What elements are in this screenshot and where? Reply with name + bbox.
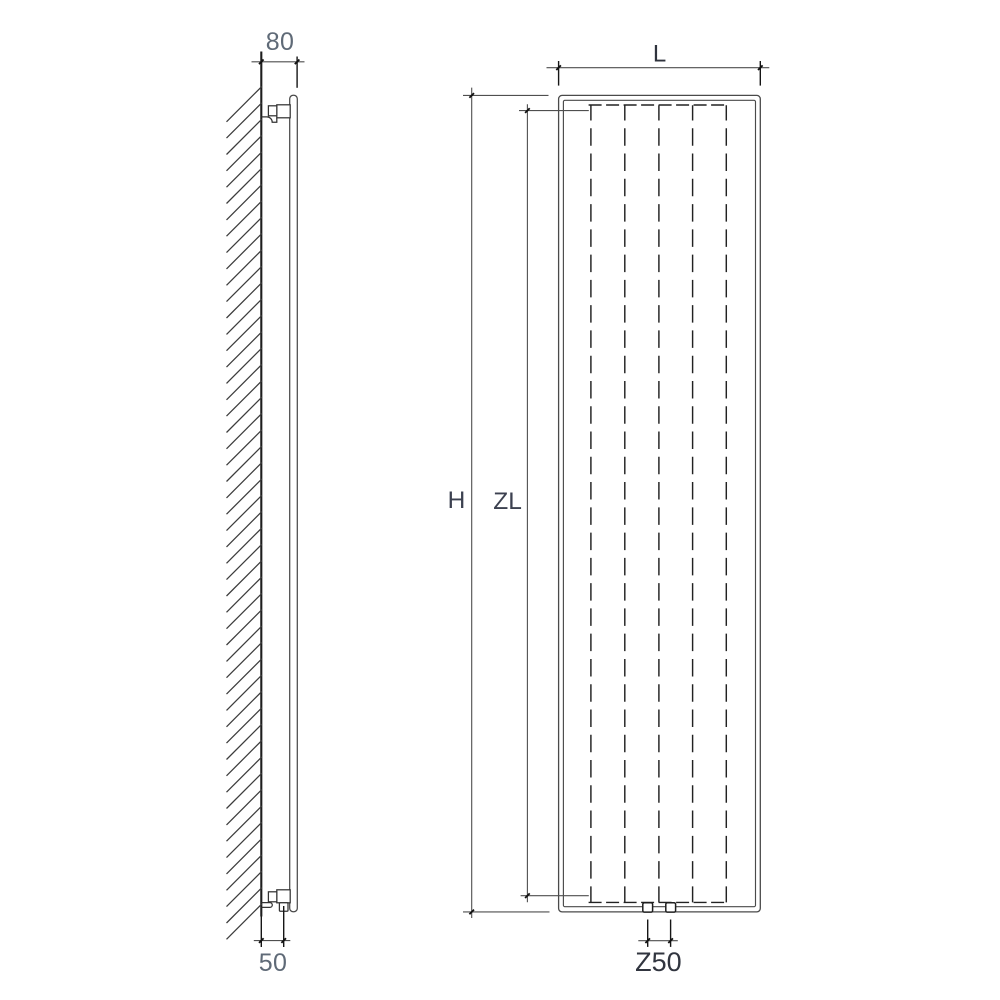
svg-text:80: 80 xyxy=(266,28,295,56)
svg-text:ZL: ZL xyxy=(493,488,522,515)
svg-text:L: L xyxy=(653,41,666,68)
svg-text:H: H xyxy=(448,487,466,514)
svg-text:Z50: Z50 xyxy=(635,947,682,977)
svg-text:50: 50 xyxy=(259,949,288,977)
